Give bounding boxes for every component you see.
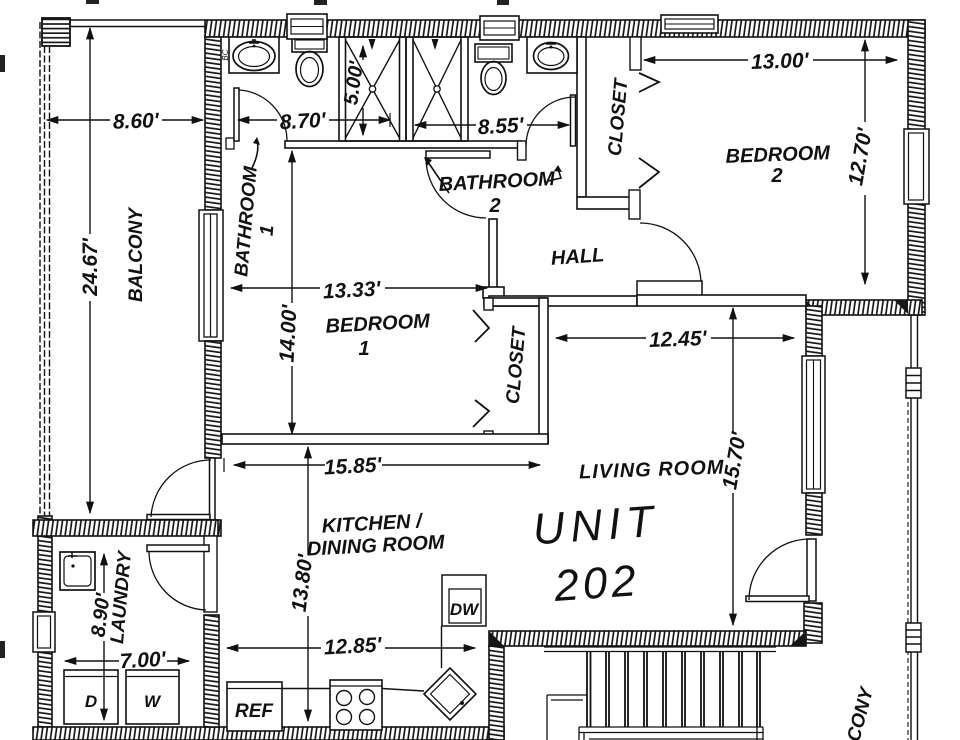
svg-text:UNIT: UNIT xyxy=(531,497,661,555)
svg-text:8.70': 8.70' xyxy=(279,109,327,134)
svg-text:13.00': 13.00' xyxy=(751,49,810,74)
svg-text:DW: DW xyxy=(450,600,480,619)
svg-text:13.33': 13.33' xyxy=(322,277,382,303)
svg-text:1: 1 xyxy=(358,338,369,360)
svg-text:2: 2 xyxy=(770,165,782,187)
svg-text:14.00': 14.00' xyxy=(276,303,302,363)
svg-text:W: W xyxy=(144,692,162,711)
svg-text:BALCONY: BALCONY xyxy=(126,206,147,302)
svg-text:24.67': 24.67' xyxy=(79,237,102,297)
svg-text:BEDROOM: BEDROOM xyxy=(725,142,831,168)
svg-text:12.85': 12.85' xyxy=(323,633,383,659)
svg-text:202: 202 xyxy=(552,556,642,611)
svg-text:7.00': 7.00' xyxy=(119,648,167,673)
svg-text:REF: REF xyxy=(235,701,274,722)
svg-text:1: 1 xyxy=(257,224,279,236)
svg-text:2: 2 xyxy=(488,195,500,217)
svg-text:8.55': 8.55' xyxy=(477,114,525,139)
svg-text:D: D xyxy=(85,692,97,711)
svg-text:BC: BC xyxy=(221,49,230,60)
svg-text:15.85': 15.85' xyxy=(323,453,383,479)
svg-text:8.60': 8.60' xyxy=(112,109,160,134)
svg-text:12.45': 12.45' xyxy=(649,327,708,352)
svg-text:HALL: HALL xyxy=(550,244,605,270)
